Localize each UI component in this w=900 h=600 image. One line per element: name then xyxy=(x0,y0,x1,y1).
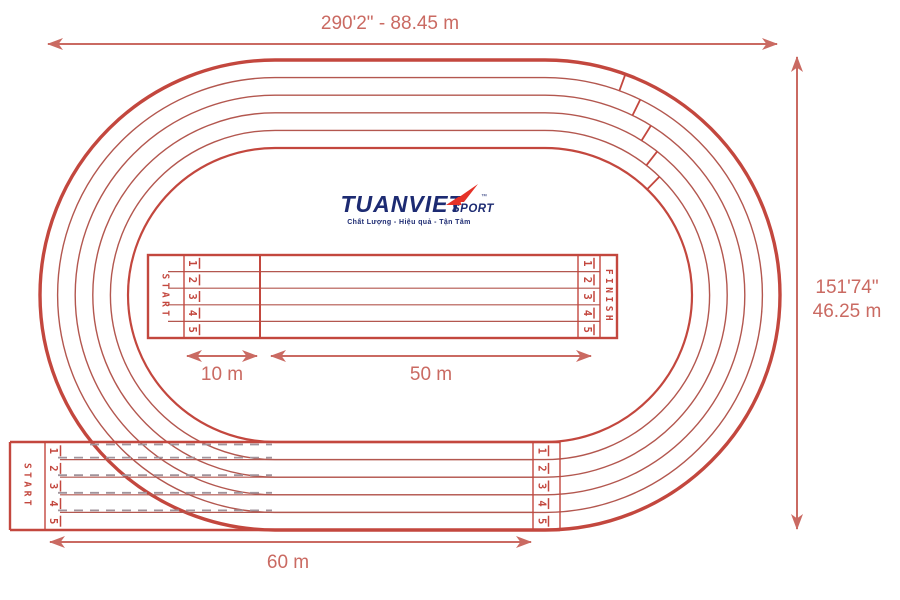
sixty-meter-label: 60 m xyxy=(267,552,309,573)
brand-logo: TUANVIET SPORT ™ Chất Lượng - Hiệu quả -… xyxy=(341,184,495,226)
lane-number: 2 xyxy=(536,465,548,471)
lane-number: 3 xyxy=(47,483,59,489)
ten-meter-label: 10 m xyxy=(201,364,243,385)
straight-dimensions: 10 m 50 m xyxy=(187,356,591,385)
lane-number: 4 xyxy=(186,310,198,316)
right-dimension-feet-label: 151'74" xyxy=(815,277,878,298)
bottom-straight-track: START 1 2 3 4 5 1 2 3 4 5 xyxy=(10,442,560,530)
lane-number: 1 xyxy=(186,260,198,266)
lane-number: 1 xyxy=(581,260,593,266)
lane-number: 4 xyxy=(536,500,548,506)
start-label: START xyxy=(160,273,171,319)
stagger-mark-1 xyxy=(619,74,625,91)
lane-number: 4 xyxy=(581,310,593,316)
lane-number: 2 xyxy=(581,277,593,283)
inner-straight-track: START FINISH 1 2 3 4 5 1 2 3 4 5 xyxy=(148,255,617,338)
lane-number: 1 xyxy=(536,448,548,454)
right-dimension-meters-label: 46.25 m xyxy=(813,301,882,322)
right-dimension: 151'74" 46.25 m xyxy=(797,57,881,529)
brand-tagline: Chất Lượng - Hiệu quả - Tận Tâm xyxy=(347,218,471,226)
fifty-meter-label: 50 m xyxy=(410,364,452,385)
lane-number: 3 xyxy=(186,293,198,299)
inner-straight-outline xyxy=(148,255,617,338)
lane-number: 3 xyxy=(581,293,593,299)
lane-number: 5 xyxy=(186,327,198,333)
finish-label: FINISH xyxy=(603,269,614,324)
track-diagram: 290'2" - 88.45 m 151'74" 46.25 m START F… xyxy=(0,0,900,600)
stagger-mark-5 xyxy=(647,177,659,190)
stagger-mark-2 xyxy=(633,100,641,116)
top-dimension-label: 290'2" - 88.45 m xyxy=(321,13,459,34)
sixty-meter-dimension: 60 m xyxy=(50,542,531,573)
start-label: START xyxy=(22,463,33,509)
track-diagram-canvas: 290'2" - 88.45 m 151'74" 46.25 m START F… xyxy=(0,0,900,600)
lane-number: 5 xyxy=(47,518,59,524)
trademark-symbol: ™ xyxy=(481,193,487,200)
lane-number: 3 xyxy=(536,483,548,489)
lane-number: 5 xyxy=(536,518,548,524)
lane-number: 2 xyxy=(186,277,198,283)
stagger-mark-4 xyxy=(646,151,657,165)
lane-number: 2 xyxy=(47,465,59,471)
lane-number: 4 xyxy=(47,500,59,506)
brand-name: TUANVIET xyxy=(341,191,465,217)
lane-number: 1 xyxy=(47,448,59,454)
stagger-mark-3 xyxy=(642,126,651,141)
top-dimension: 290'2" - 88.45 m xyxy=(48,13,777,44)
lane-number: 5 xyxy=(581,327,593,333)
